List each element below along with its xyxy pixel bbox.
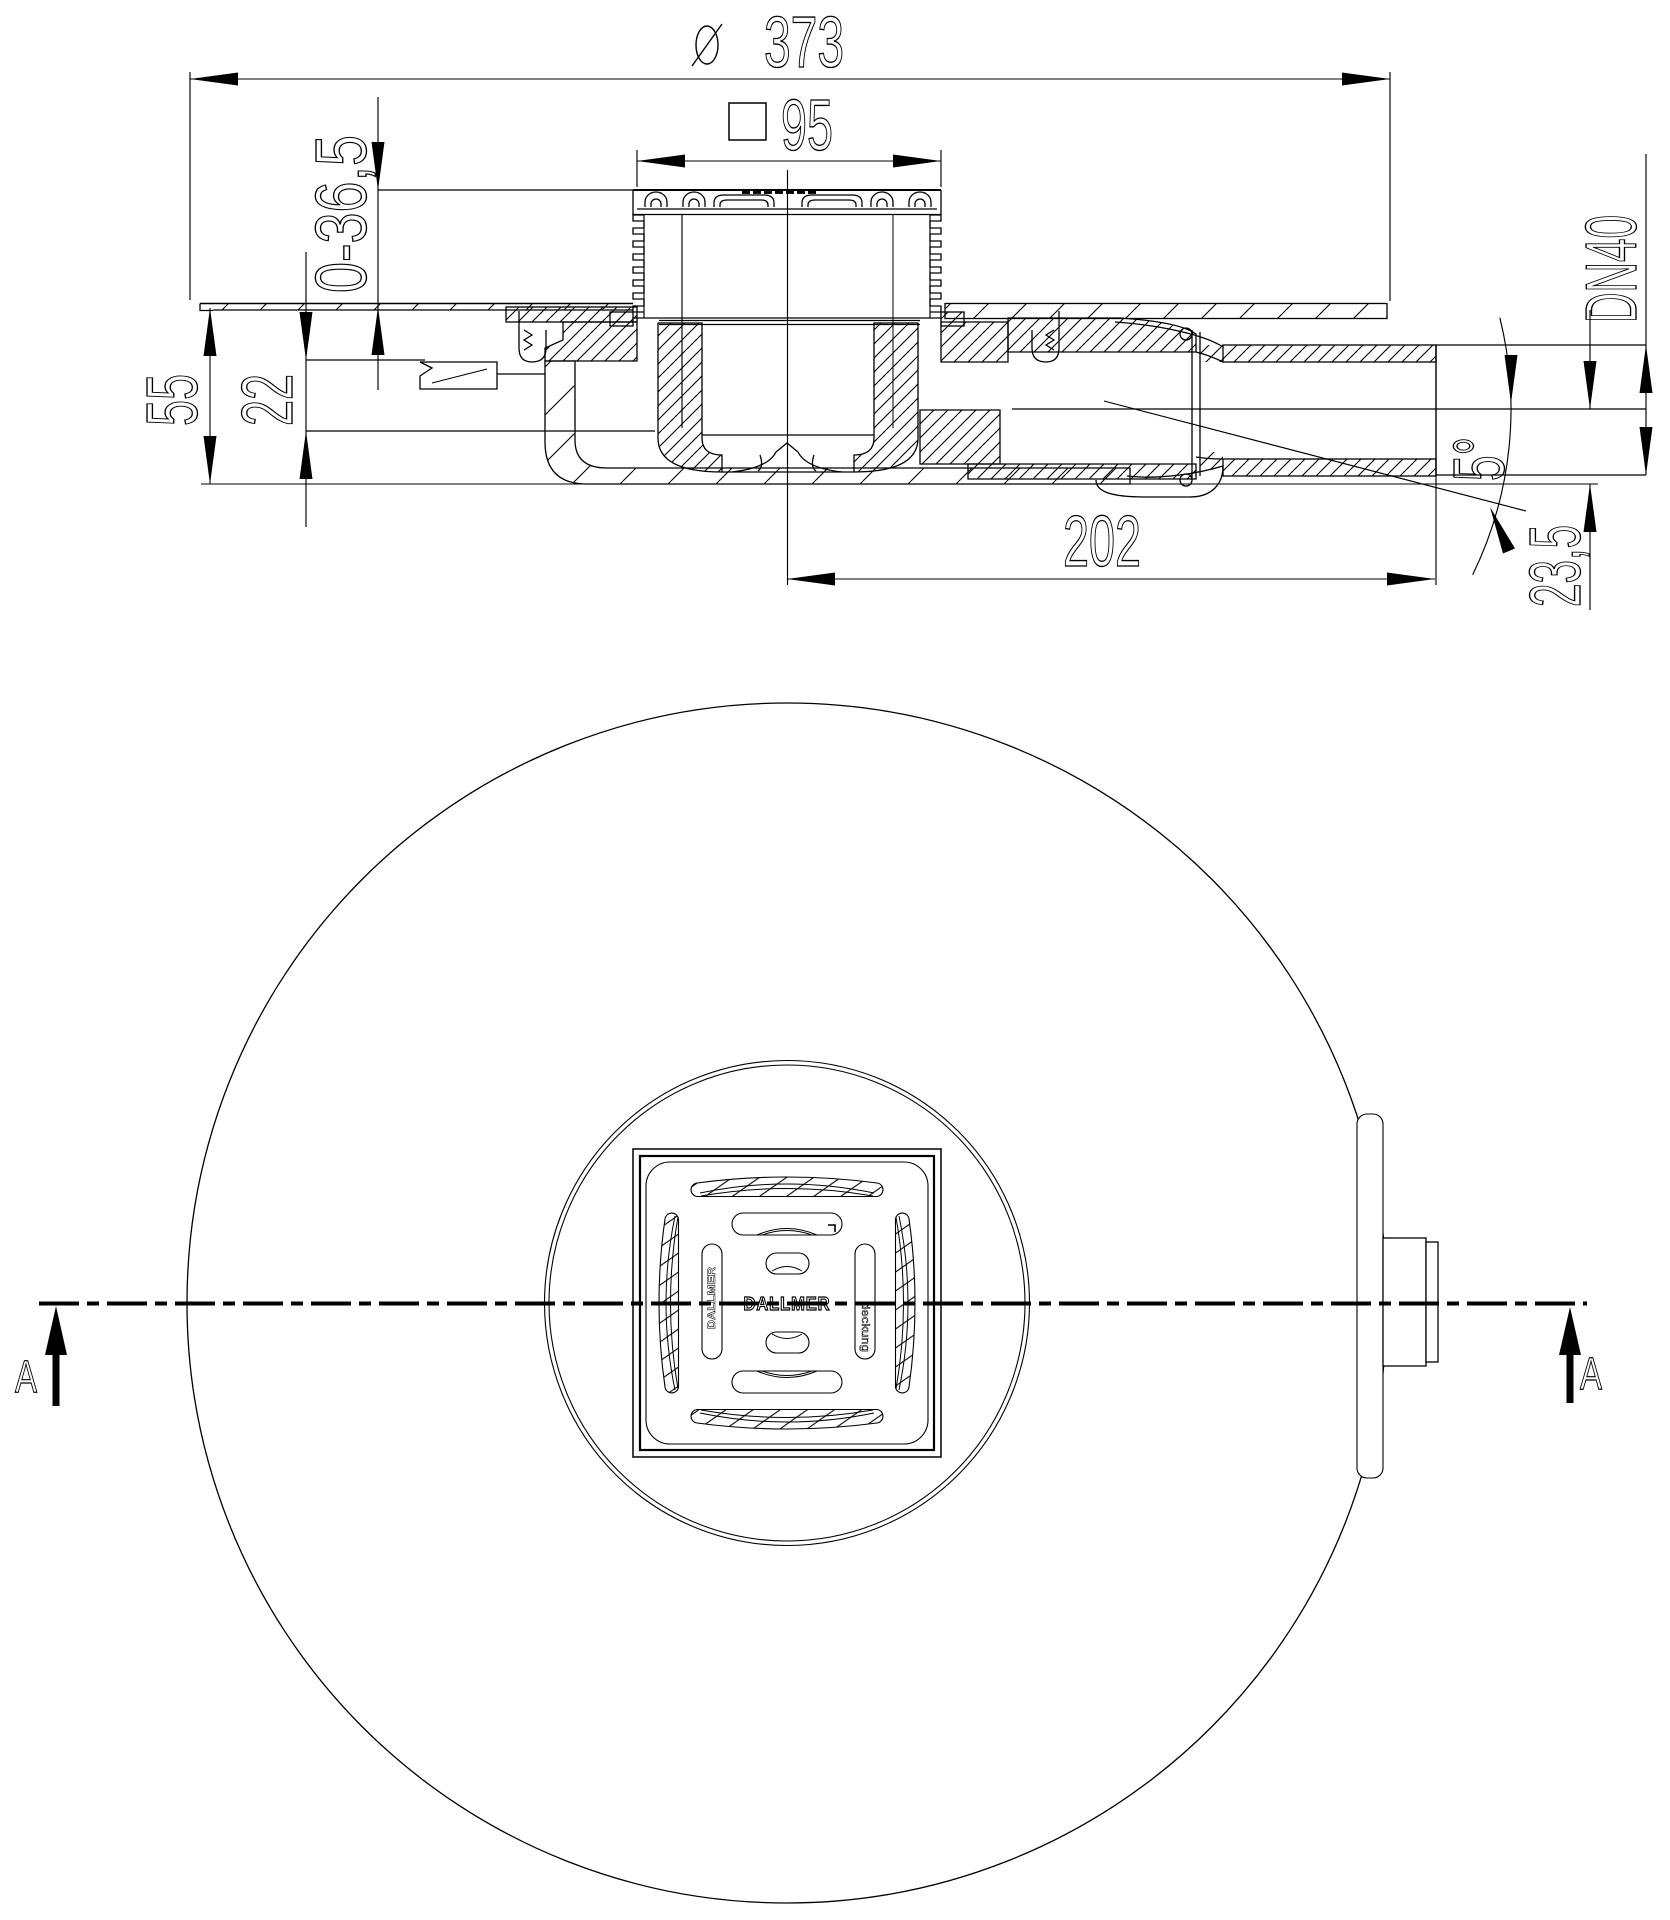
svg-text:A: A (15, 1351, 37, 1402)
svg-text:deckung: deckung (859, 1302, 871, 1352)
svg-text:DN40: DN40 (1572, 215, 1652, 323)
svg-text:DALLMER: DALLMER (706, 1267, 718, 1329)
svg-text:95: 95 (781, 86, 833, 166)
svg-text:0-36,5: 0-36,5 (302, 135, 382, 293)
svg-text:23,5: 23,5 (1516, 525, 1596, 607)
svg-text:373: 373 (764, 3, 844, 83)
svg-text:5°: 5° (1440, 437, 1520, 481)
svg-text:22: 22 (228, 374, 308, 426)
svg-text:55: 55 (133, 374, 213, 426)
svg-text:A: A (1580, 1348, 1602, 1399)
svg-text:202: 202 (1063, 502, 1141, 582)
